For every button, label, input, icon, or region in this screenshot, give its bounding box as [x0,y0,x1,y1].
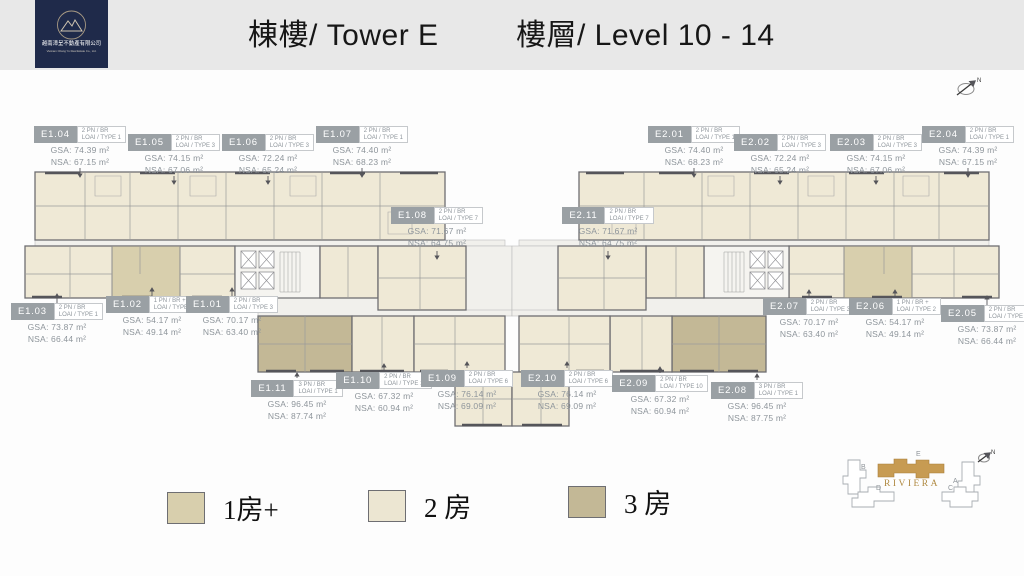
unit-id: E1.01 [186,296,229,313]
unit-nsa: NSA: 63.40 m² [180,327,284,337]
legend-label-3br: 3 房 [624,482,671,521]
unit-gsa: GSA: 72.24 m² [728,153,832,163]
unit-gsa: GSA: 74.39 m² [28,145,132,155]
legend-swatch-2br [368,490,406,522]
minimap-tower-c-label: C [948,485,953,492]
minimap-project-name: RIVIERA [884,479,940,489]
legend-label-1br-plus: 1房+ [223,488,279,527]
legend-swatch-3br [568,486,606,518]
unit-id: E2.04 [922,126,965,143]
unit-type: 2 PN / BRLOAI / TYPE 1 [54,303,103,320]
unit-label-e1-05: E1.052 PN / BRLOAI / TYPE 3 GSA: 74.15 m… [122,134,226,175]
unit-id: E2.05 [941,305,984,322]
unit-id: E1.06 [222,134,265,151]
unit-gsa: GSA: 54.17 m² [843,317,947,327]
unit-id: E1.09 [421,370,464,387]
unit-gsa: GSA: 73.87 m² [5,322,109,332]
unit-nsa: NSA: 49.14 m² [843,329,947,339]
unit-gsa: GSA: 67.32 m² [608,394,712,404]
minimap-tower-e-shape [878,459,944,478]
unit-label-e2-11: E2.112 PN / BRLOAI / TYPE 7 GSA: 71.67 m… [556,207,660,248]
unit-type: 2 PN / BRLOAI / TYPE 1 [359,126,408,143]
unit-type: 2 PN / BRLOAI / TYPE 7 [604,207,653,224]
north-compass-icon: N [957,78,981,95]
unit-label-e2-04: E2.042 PN / BRLOAI / TYPE 1 GSA: 74.39 m… [916,126,1020,167]
svg-text:N: N [977,78,981,84]
minimap-tower-b-label: B [861,464,866,471]
unit-id: E2.10 [521,370,564,387]
unit-label-e1-09: E1.092 PN / BRLOAI / TYPE 6 GSA: 76.14 m… [415,370,519,411]
unit-nsa: NSA: 69.09 m² [415,401,519,411]
minimap-compass-icon: N [978,450,995,462]
unit-id: E2.01 [648,126,691,143]
unit-type: 2 PN / BRLOAI / TYPE 3 [229,296,278,313]
unit-type: 2 PN / BRLOAI / TYPE 6 [464,370,513,387]
unit-nsa: NSA: 67.06 m² [824,165,928,175]
unit-nsa: NSA: 60.94 m² [608,406,712,416]
unit-gsa: GSA: 74.39 m² [916,145,1020,155]
unit-id: E1.05 [128,134,171,151]
unit-type: 2 PN / BRLOAI / TYPE 1 [965,126,1014,143]
unit-gsa: GSA: 74.40 m² [310,145,414,155]
minimap-tower-d-label: D [876,485,881,492]
unit-id: E1.07 [316,126,359,143]
unit-nsa: NSA: 66.44 m² [935,336,1024,346]
unit-type: 1 PN / BR +LOAI / TYPE 2 [892,298,941,315]
unit-label-e2-02: E2.022 PN / BRLOAI / TYPE 3 GSA: 72.24 m… [728,134,832,175]
unit-gsa: GSA: 96.45 m² [705,401,809,411]
minimap-tower-a-label: A [953,478,958,485]
unit-label-e2-03: E2.032 PN / BRLOAI / TYPE 3 GSA: 74.15 m… [824,134,928,175]
unit-id: E1.08 [391,207,434,224]
unit-label-e2-06: E2.061 PN / BR +LOAI / TYPE 2 GSA: 54.17… [843,298,947,339]
unit-gsa: GSA: 72.24 m² [216,153,320,163]
unit-type: 3 PN / BRLOAI / TYPE 1 [754,382,803,399]
unit-label-e2-09: E2.092 PN / BRLOAI / TYPE 10 GSA: 67.32 … [608,375,712,416]
unit-id: E2.09 [612,375,655,392]
unit-nsa: NSA: 68.23 m² [310,157,414,167]
unit-type: 2 PN / BRLOAI / TYPE 1 [984,305,1024,322]
unit-gsa: GSA: 71.67 m² [385,226,489,236]
unit-type: 2 PN / BRLOAI / TYPE 6 [564,370,613,387]
unit-type: 2 PN / BRLOAI / TYPE 7 [434,207,483,224]
unit-label-e1-08: E1.082 PN / BRLOAI / TYPE 7 GSA: 71.67 m… [385,207,489,248]
unit-id: E2.07 [763,298,806,315]
unit-gsa: GSA: 74.15 m² [824,153,928,163]
legend-label-2br: 2 房 [424,486,471,525]
unit-label-e1-01: E1.012 PN / BRLOAI / TYPE 3 GSA: 70.17 m… [180,296,284,337]
unit-id: E2.02 [734,134,777,151]
unit-gsa: GSA: 70.17 m² [180,315,284,325]
unit-id: E1.02 [106,296,149,313]
unit-id: E2.08 [711,382,754,399]
unit-label-e1-06: E1.062 PN / BRLOAI / TYPE 3 GSA: 72.24 m… [216,134,320,175]
legend-item-1br-plus: 1房+ [167,488,279,527]
unit-id: E1.04 [34,126,77,143]
unit-type: 2 PN / BRLOAI / TYPE 1 [77,126,126,143]
unit-type: 2 PN / BRLOAI / TYPE 10 [655,375,708,392]
unit-nsa: NSA: 66.44 m² [5,334,109,344]
unit-label-e2-08: E2.083 PN / BRLOAI / TYPE 1 GSA: 96.45 m… [705,382,809,423]
unit-id: E2.11 [562,207,604,224]
unit-label-e1-07: E1.072 PN / BRLOAI / TYPE 1 GSA: 74.40 m… [310,126,414,167]
unit-nsa: NSA: 87.75 m² [705,413,809,423]
unit-id: E1.03 [11,303,54,320]
svg-text:N: N [991,450,995,456]
unit-id: E1.11 [251,380,293,397]
unit-id: E1.10 [336,372,379,389]
unit-type: 2 PN / BRLOAI / TYPE 3 [171,134,220,151]
unit-id: E2.06 [849,298,892,315]
unit-nsa: NSA: 65.24 m² [728,165,832,175]
unit-id: E2.03 [830,134,873,151]
unit-label-e2-05: E2.052 PN / BRLOAI / TYPE 1 GSA: 73.87 m… [935,305,1024,346]
legend-swatch-1br-plus [167,492,205,524]
unit-nsa: NSA: 67.06 m² [122,165,226,175]
unit-nsa: NSA: 65.24 m² [216,165,320,175]
unit-type: 2 PN / BRLOAI / TYPE 3 [873,134,922,151]
unit-gsa: GSA: 76.14 m² [415,389,519,399]
unit-type: 2 PN / BRLOAI / TYPE 3 [265,134,314,151]
unit-nsa: NSA: 67.15 m² [916,157,1020,167]
unit-type: 2 PN / BRLOAI / TYPE 3 [777,134,826,151]
minimap-tower-e-label: E [916,451,921,458]
legend-item-2br: 2 房 [368,486,471,525]
slide: 越南漳呈不動產有限公司 Vietnam Chang Yu Real Estate… [0,0,1024,576]
site-minimap: B E A D C RIVIERA N [843,450,995,507]
unit-nsa: NSA: 64.75 m² [385,238,489,248]
unit-gsa: GSA: 74.15 m² [122,153,226,163]
unit-nsa: NSA: 64.75 m² [556,238,660,248]
unit-label-e2-10: E2.102 PN / BRLOAI / TYPE 6 GSA: 76.14 m… [515,370,619,411]
unit-gsa: GSA: 73.87 m² [935,324,1024,334]
unit-label-e1-04: E1.042 PN / BRLOAI / TYPE 1 GSA: 74.39 m… [28,126,132,167]
unit-label-e1-03: E1.032 PN / BRLOAI / TYPE 1 GSA: 73.87 m… [5,303,109,344]
unit-nsa: NSA: 67.15 m² [28,157,132,167]
floor-plan: N B E A D C RIVIERA N [0,0,1024,576]
legend-item-3br: 3 房 [568,482,671,521]
unit-gsa: GSA: 76.14 m² [515,389,619,399]
unit-nsa: NSA: 69.09 m² [515,401,619,411]
unit-gsa: GSA: 71.67 m² [556,226,660,236]
